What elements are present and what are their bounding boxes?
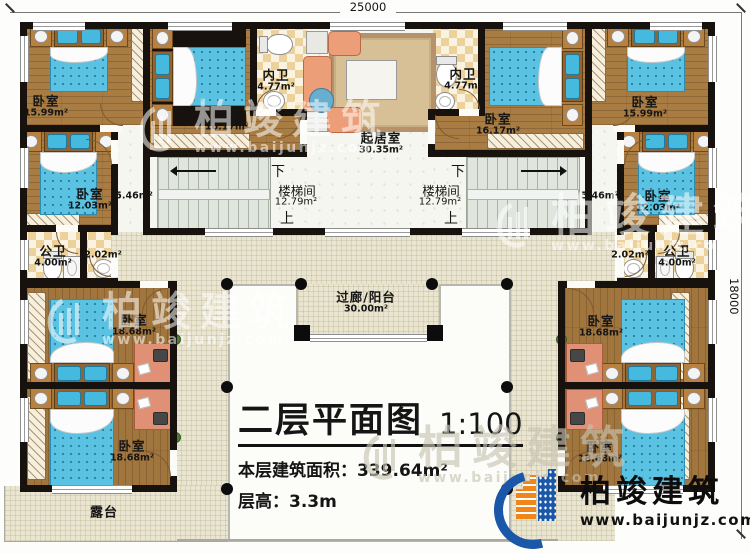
room-label-closet-l: 2.02m² [84, 251, 122, 262]
stair-down-label: 下 [451, 161, 465, 181]
desk [566, 389, 603, 430]
stair-up-label: 上 [280, 208, 294, 228]
room-label-hall-r: 5.46m² [581, 192, 619, 203]
desk [134, 389, 171, 430]
nightstand [106, 26, 128, 47]
title-block: 二层平面图 1:100 本层建筑面积：339.64m² 层高：3.3m [238, 404, 523, 512]
pillow [57, 29, 78, 44]
stair-area-label: 12.79m² [419, 197, 461, 208]
room-label-terrace: 露台 [90, 507, 118, 522]
stairs-right [466, 157, 580, 230]
paper [137, 363, 151, 376]
column [295, 278, 307, 290]
logo-building-blue [538, 469, 556, 521]
window [20, 398, 29, 442]
bed [30, 299, 134, 384]
side-table [306, 111, 328, 132]
column [426, 278, 438, 290]
window [708, 300, 717, 344]
computer [153, 349, 168, 362]
armchair [309, 88, 334, 113]
room-label-bedroom-wr2: 卧室18.68m² [578, 441, 622, 466]
company-logo: 柏竣建筑 www.baijunjz.com [492, 463, 750, 545]
wall-segment [530, 228, 592, 235]
room-label-bath-public-l: 公卫4.00m² [34, 245, 72, 270]
window [708, 148, 717, 188]
room-label-bedroom-tr2: 卧室16.17m² [476, 113, 520, 138]
toilet-tank [259, 36, 268, 53]
room-label-bedroom-wl2: 卧室18.68m² [110, 440, 154, 465]
window [708, 36, 717, 82]
toilet-tank [436, 56, 457, 65]
sofa [327, 107, 362, 133]
floor-area-line: 本层建筑面积：339.64m² [238, 456, 523, 481]
room-label-bedroom-tl1: 卧室15.99m² [24, 95, 68, 120]
window [20, 148, 29, 188]
room-label-bedroom-wr1: 卧室18.68m² [579, 315, 623, 340]
window [52, 485, 132, 494]
room-label-bath-public-r: 公卫4.00m² [658, 245, 696, 270]
company-website: www.baijunjz.com [580, 511, 750, 529]
stair-direction-arrow [521, 170, 565, 172]
logo-building-orange [516, 475, 536, 519]
window [650, 22, 702, 31]
wall-segment [143, 150, 307, 157]
toilet [266, 34, 293, 55]
room-label-hall-l: 5.46m² [115, 192, 153, 203]
wall-segment [250, 22, 257, 116]
window [168, 22, 232, 31]
dimension-right-value: 18000 [727, 278, 741, 315]
wall-segment [558, 382, 715, 389]
bed [607, 26, 705, 92]
bed [30, 388, 134, 487]
stair-direction-arrow [172, 170, 216, 172]
room-label-bedroom-tr1: 卧室15.99m² [623, 96, 667, 121]
sofa [328, 31, 361, 56]
room-label-bedroom-wl1: 卧室18.68m² [112, 314, 156, 339]
drawing-scale: 1:100 [439, 410, 523, 439]
window [503, 22, 567, 31]
stairs-left [157, 157, 271, 230]
room-label-living: 起居室30.35m² [359, 132, 403, 157]
stair-rail [467, 189, 579, 200]
window [330, 22, 405, 31]
window [708, 240, 717, 270]
column [501, 381, 513, 393]
room-label-bath-inner-l: 内卫4.77m² [257, 69, 295, 94]
window [20, 36, 29, 82]
room-label-bath-inner-r: 内卫4.77m² [444, 68, 482, 93]
drawing-title: 二层平面图 [238, 404, 423, 439]
company-logo-icon [492, 463, 572, 545]
room-label-closet-r: 2.02m² [611, 251, 649, 262]
wall-segment [143, 22, 150, 157]
column [294, 325, 310, 341]
wall-segment [20, 382, 177, 389]
window [708, 398, 717, 442]
side-table [306, 31, 328, 54]
room-label-bedroom-tl2: 卧室16.17m² [205, 109, 249, 134]
stair-down-label: 下 [271, 161, 285, 181]
bed [30, 26, 128, 92]
company-name: 柏竣建筑 [580, 475, 750, 509]
column [221, 381, 233, 393]
column [501, 278, 513, 290]
window [20, 240, 29, 270]
threshold [205, 228, 273, 237]
pillow [81, 29, 102, 44]
wall-segment [410, 228, 462, 235]
wall-segment [428, 150, 592, 157]
stair-up-label: 上 [444, 208, 458, 228]
floor-plan-drawing: 卧室15.99m² 卧室16.17m² 内卫4.77m² 起居室30.35m² … [0, 0, 750, 554]
threshold [462, 228, 530, 237]
wall-segment [585, 22, 592, 157]
room-label-corridor: 过廊/阳台30.00m² [336, 291, 396, 316]
dimension-top-value: 25000 [340, 0, 396, 14]
stair-area-label: 12.79m² [275, 197, 317, 208]
desk [566, 343, 603, 384]
stair-rail [158, 189, 270, 200]
desk [134, 343, 171, 384]
floor-height-line: 层高：3.3m [238, 487, 523, 512]
window [20, 300, 29, 344]
window [33, 22, 85, 31]
title-row: 二层平面图 1:100 [238, 404, 523, 447]
column [221, 278, 233, 290]
wardrobe [153, 133, 250, 149]
bed [601, 299, 705, 384]
room-label-bedroom-mr: 卧室12.03m² [636, 190, 680, 215]
column [427, 325, 443, 341]
coffee-table [346, 60, 397, 100]
room-label-bedroom-ml: 卧室12.03m² [68, 188, 112, 213]
corridor-railing [310, 334, 427, 342]
wall-segment [273, 228, 325, 235]
threshold [325, 228, 410, 237]
dimension-line-right [741, 12, 742, 539]
column [221, 483, 233, 495]
wall-segment [143, 228, 205, 235]
